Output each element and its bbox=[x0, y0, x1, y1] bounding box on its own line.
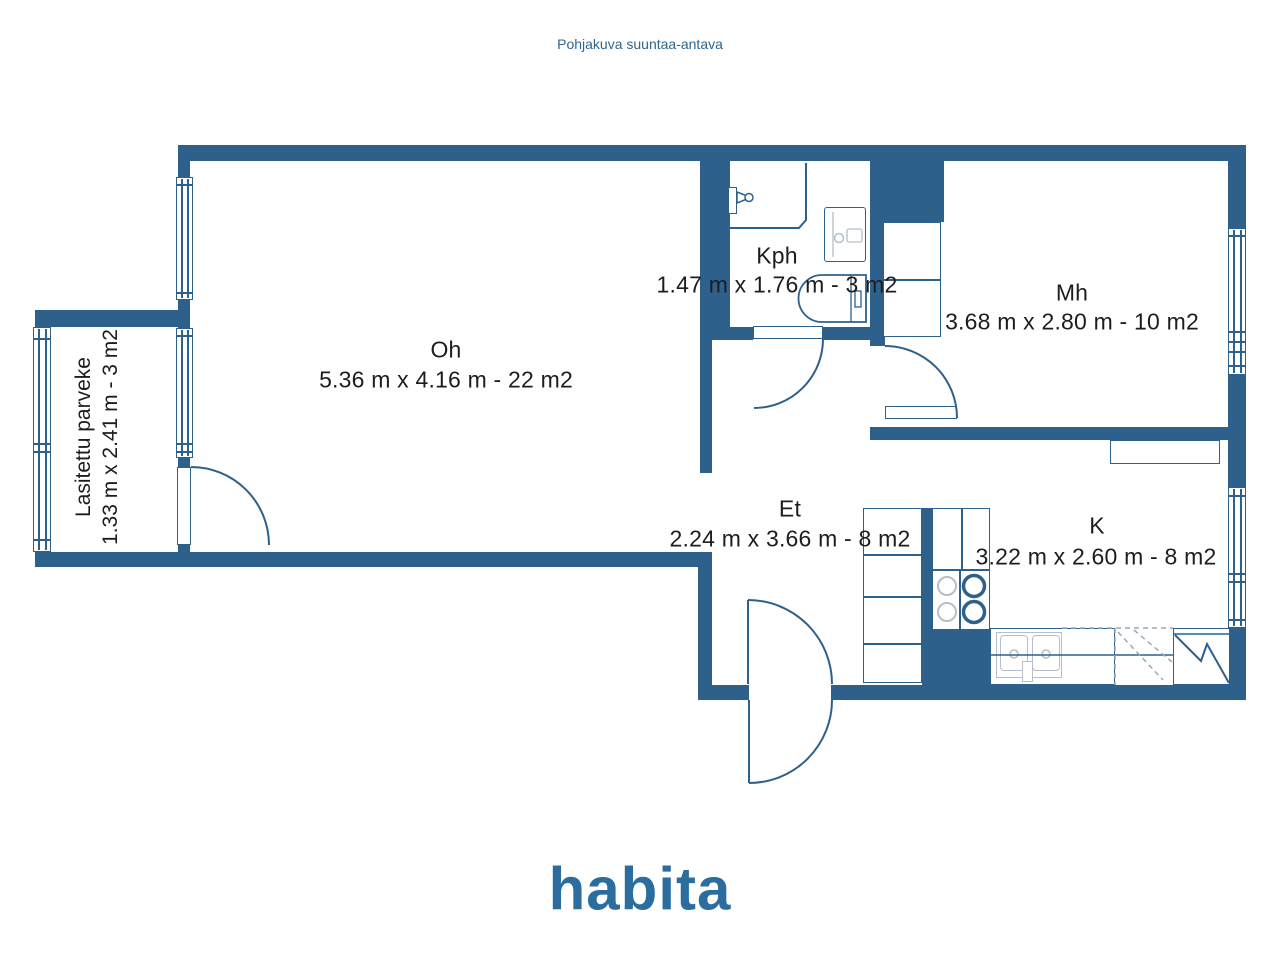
door-arc-balcony bbox=[191, 467, 269, 545]
wall-bottom-right bbox=[831, 685, 1246, 700]
shower-head-tip bbox=[745, 194, 753, 202]
wall-balcony-top bbox=[35, 310, 178, 327]
washbasin bbox=[824, 207, 866, 262]
balcony-name: Lasitettu parveke bbox=[70, 329, 97, 545]
door-leaf-balcony bbox=[177, 467, 191, 545]
line-details bbox=[0, 0, 1280, 960]
room-dims-mh: 3.68 m x 2.80 m - 10 m2 bbox=[945, 309, 1199, 336]
room-dims-k: 3.22 m x 2.60 m - 8 m2 bbox=[976, 544, 1217, 571]
reservation-diag-1 bbox=[1118, 632, 1163, 680]
window-living-upper bbox=[176, 177, 193, 300]
window-bedroom bbox=[1228, 228, 1246, 375]
wall-left-seg-c bbox=[178, 458, 190, 467]
window-kitchen bbox=[1228, 487, 1246, 628]
door-arc-entry-outer bbox=[749, 700, 832, 783]
wall-living-hall bbox=[700, 340, 712, 473]
wall-hall-left-lower bbox=[698, 552, 712, 700]
door-leaf-bathroom bbox=[753, 326, 823, 339]
stove-right-half bbox=[960, 570, 990, 630]
room-dims-oh: 5.36 m x 4.16 m - 22 m2 bbox=[319, 367, 573, 394]
room-label-oh: Oh bbox=[430, 337, 461, 364]
wall-hall-kitchen bbox=[922, 508, 932, 630]
wall-living-bath bbox=[700, 145, 730, 340]
shower-head-icon bbox=[737, 192, 751, 203]
room-label-kph: Kph bbox=[756, 243, 798, 270]
room-label-k: K bbox=[1089, 513, 1105, 540]
wall-bottom-left bbox=[698, 685, 749, 700]
door-leaf-bedroom bbox=[885, 406, 957, 419]
floor-plan: Pohjakuva suuntaa-antava Oh 5.36 m x 4.1… bbox=[0, 0, 1280, 960]
plan-disclaimer: Pohjakuva suuntaa-antava bbox=[557, 36, 723, 52]
sink-basin-right bbox=[1032, 635, 1060, 671]
shower-enclosure bbox=[730, 163, 806, 228]
wall-living-bottom bbox=[35, 552, 712, 567]
door-arc-entry-inner bbox=[748, 600, 832, 684]
habita-logo: habita bbox=[549, 855, 732, 924]
wall-corner-block bbox=[870, 145, 944, 222]
door-arc-bathroom bbox=[754, 339, 823, 408]
stove-left-half bbox=[932, 570, 960, 630]
wall-left-seg-b bbox=[178, 300, 190, 328]
reservation-diag-2 bbox=[1134, 630, 1172, 662]
room-label-balcony: Lasitettu parveke 1.33 m x 2.41 m - 3 m2 bbox=[70, 329, 124, 545]
room-label-mh: Mh bbox=[1056, 280, 1088, 307]
room-label-et: Et bbox=[779, 496, 801, 523]
balcony-dims: 1.33 m x 2.41 m - 3 m2 bbox=[97, 329, 124, 545]
wall-right-seg-a bbox=[1228, 145, 1246, 228]
wall-left-seg-a bbox=[178, 145, 190, 177]
window-balcony bbox=[33, 327, 51, 552]
room-dims-et: 2.24 m x 3.66 m - 8 m2 bbox=[670, 526, 911, 553]
window-living-lower bbox=[176, 328, 193, 458]
cabinet-kitchen-low bbox=[1110, 440, 1220, 464]
shower-bracket bbox=[728, 187, 737, 214]
sink-mixer bbox=[1022, 661, 1033, 682]
wall-right-seg-b bbox=[1228, 375, 1246, 487]
fridge bbox=[1173, 628, 1230, 685]
wall-bedroom-bottom bbox=[870, 427, 1246, 440]
room-dims-kph: 1.47 m x 1.76 m - 3 m2 bbox=[657, 272, 898, 299]
wall-bath-bottom-left bbox=[700, 327, 753, 340]
